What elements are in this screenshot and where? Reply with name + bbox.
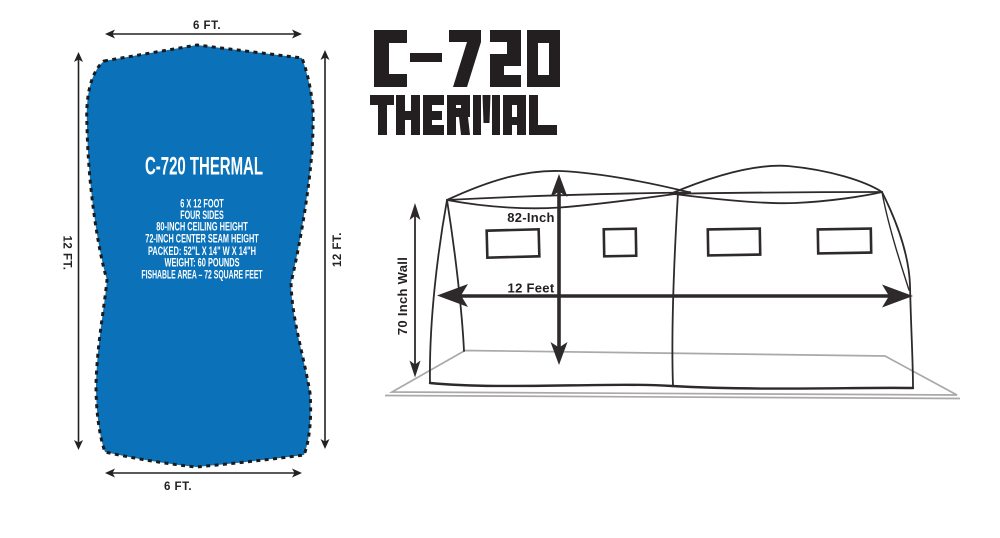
svg-text:6 FT.: 6 FT. [193,20,221,32]
svg-text:12 FT.: 12 FT. [332,232,344,267]
svg-text:12 FT.: 12 FT. [61,236,73,271]
svg-text:FISHABLE AREA – 72 SQUARE FEET: FISHABLE AREA – 72 SQUARE FEET [141,268,262,282]
svg-text:82-Inch: 82-Inch [507,210,555,225]
svg-text:6 FT.: 6 FT. [164,481,192,493]
svg-text:C-720 THERMAL: C-720 THERMAL [145,154,263,181]
svg-text:70 Inch Wall: 70 Inch Wall [395,257,410,335]
svg-text:12 Feet: 12 Feet [508,281,555,296]
